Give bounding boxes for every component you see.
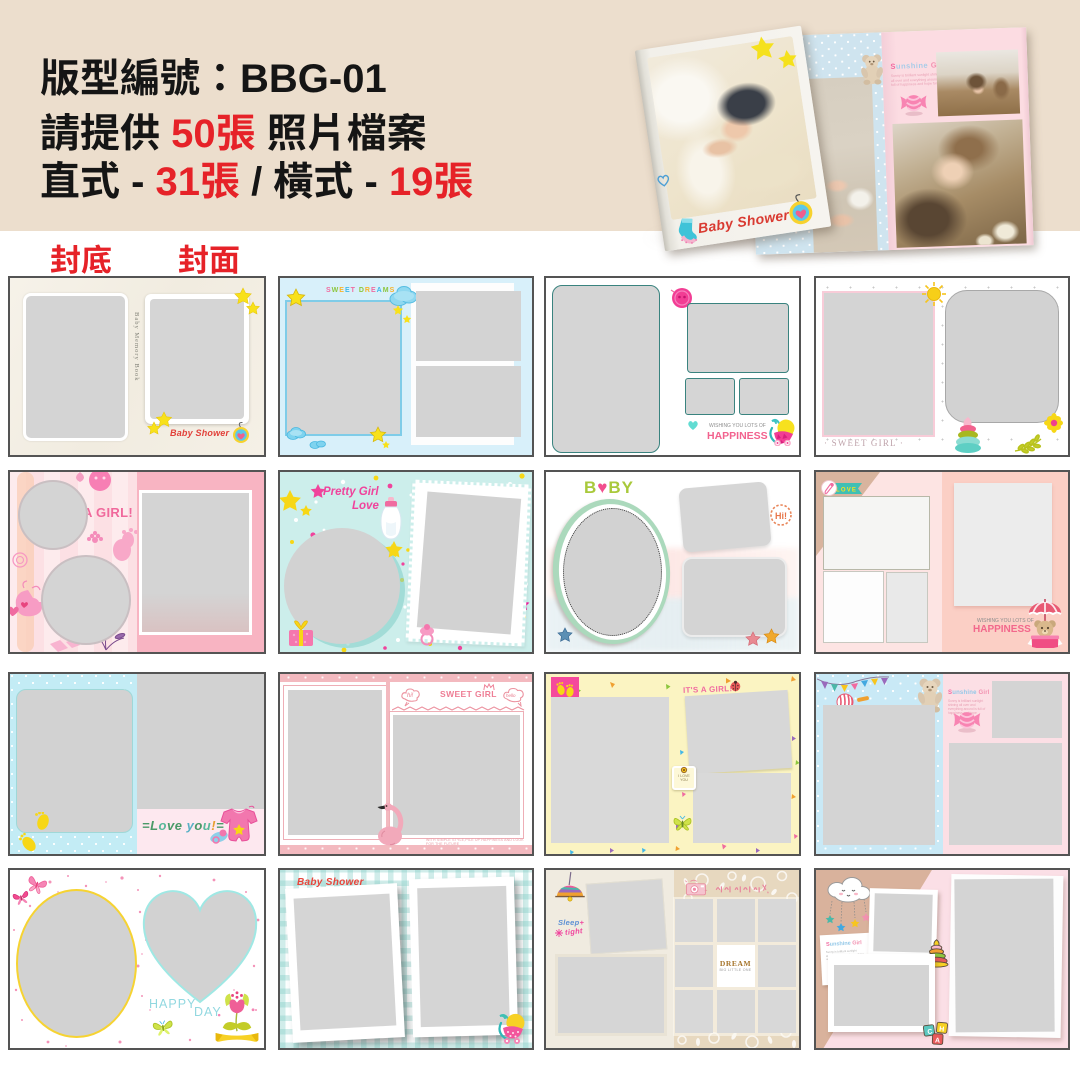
svg-text:LOVE: LOVE — [836, 488, 857, 494]
svg-text:C: C — [927, 1028, 933, 1036]
svg-text:H: H — [939, 1026, 945, 1033]
svg-text:hi!: hi! — [407, 693, 414, 699]
svg-text:A: A — [935, 1037, 940, 1044]
svg-text:hello: hello — [506, 693, 516, 698]
svg-text:Hi!: Hi! — [775, 511, 787, 521]
